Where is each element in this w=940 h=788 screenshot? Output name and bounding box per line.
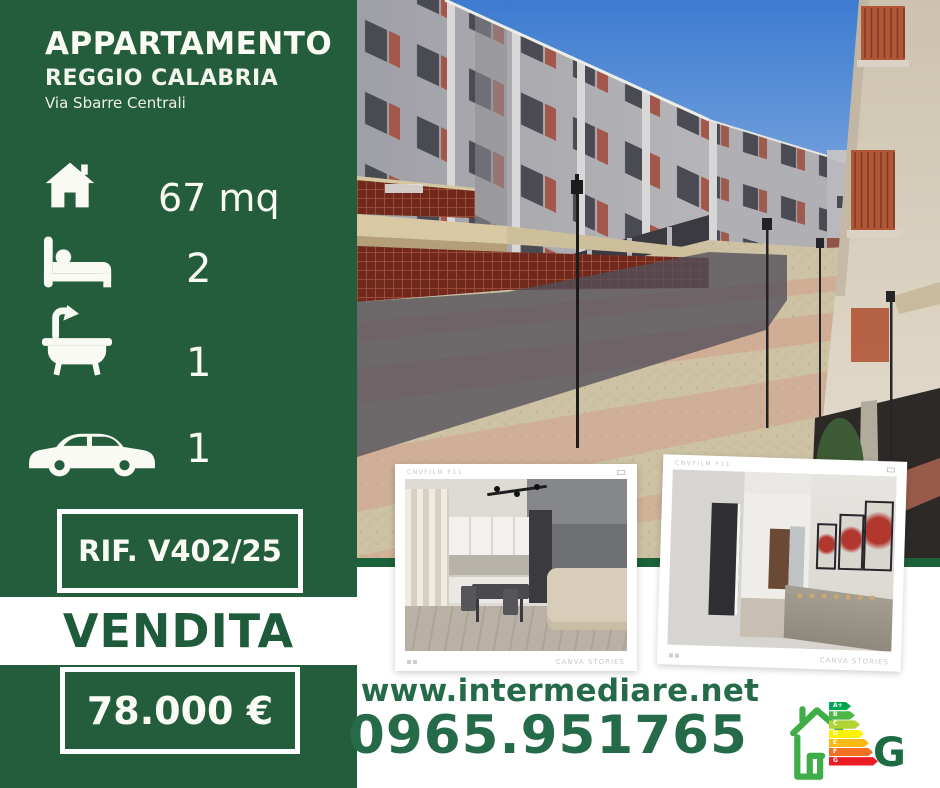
wall-painting [838,513,864,570]
energy-bar-f: F [829,748,873,756]
energy-scale: A+ B C D E F G [829,702,878,766]
interior-photo-hallway: CNVFILM F11 CANVA STORIES [657,454,907,672]
film-frame-header: CNVFILM F11 [407,467,625,478]
film-frame-icon [617,470,625,475]
kitchen-photo [405,479,627,651]
house-icon [42,160,98,210]
energy-bar-c: C [829,720,860,728]
bathrooms-value: 1 [186,340,211,386]
film-controls-icon [407,660,417,664]
bathtub-icon [42,303,112,379]
doorway [709,502,742,615]
energy-bar-b: B [829,711,855,719]
street-address: Via Sbarre Centrali [45,94,186,112]
film-frame-footer: CANVA STORIES [669,650,889,668]
reference-box: RIF. V402/25 [57,509,303,593]
interior-photo-kitchen: CNVFILM F11 CANVA STORIES [395,464,637,671]
wall-painting [862,500,893,571]
transaction-band: VENDITA [0,597,357,665]
film-controls-icon [669,653,679,657]
city-subtitle: REGGIO CALABRIA [45,66,278,91]
bed-icon [42,236,116,288]
film-frame-footer: CANVA STORIES [407,656,625,667]
brand-label: CANVA STORIES [820,656,890,666]
camera-label: CNVFILM F11 [675,460,731,469]
bedrooms-value: 2 [186,246,211,292]
car-icon [25,424,159,478]
energy-rating-letter: G [873,730,906,776]
wall-painting [815,523,837,569]
camera-label: CNVFILM F11 [407,469,463,476]
surface-value: 67 mq [158,176,280,220]
energy-bar-g: G [829,757,878,765]
transaction-label: VENDITA [63,604,294,658]
film-frame-icon [887,467,895,472]
dining-table [472,584,530,599]
reference-label: RIF. V402/25 [78,534,282,568]
hallway-photo [667,470,896,652]
agency-website: www.intermediare.net [360,673,760,709]
agency-phone: 0965.951765 [348,705,748,766]
property-type-title: APPARTAMENTO [45,26,332,62]
price-label: 78.000 € [87,689,273,733]
sidebar: APPARTAMENTO REGGIO CALABRIA Via Sbarre … [0,0,357,788]
price-box: 78.000 € [60,667,300,754]
energy-bar-e: E [829,739,869,747]
energy-bar-a-plus: A+ [829,702,851,710]
sofa [547,568,627,630]
parking-value: 1 [186,426,211,472]
energy-class-label: A+ B C D E F G G [783,686,937,784]
real-estate-flyer: APPARTAMENTO REGGIO CALABRIA Via Sbarre … [0,0,940,788]
brand-label: CANVA STORIES [556,658,625,666]
ornaments [794,587,880,605]
energy-bar-d: D [829,730,864,738]
